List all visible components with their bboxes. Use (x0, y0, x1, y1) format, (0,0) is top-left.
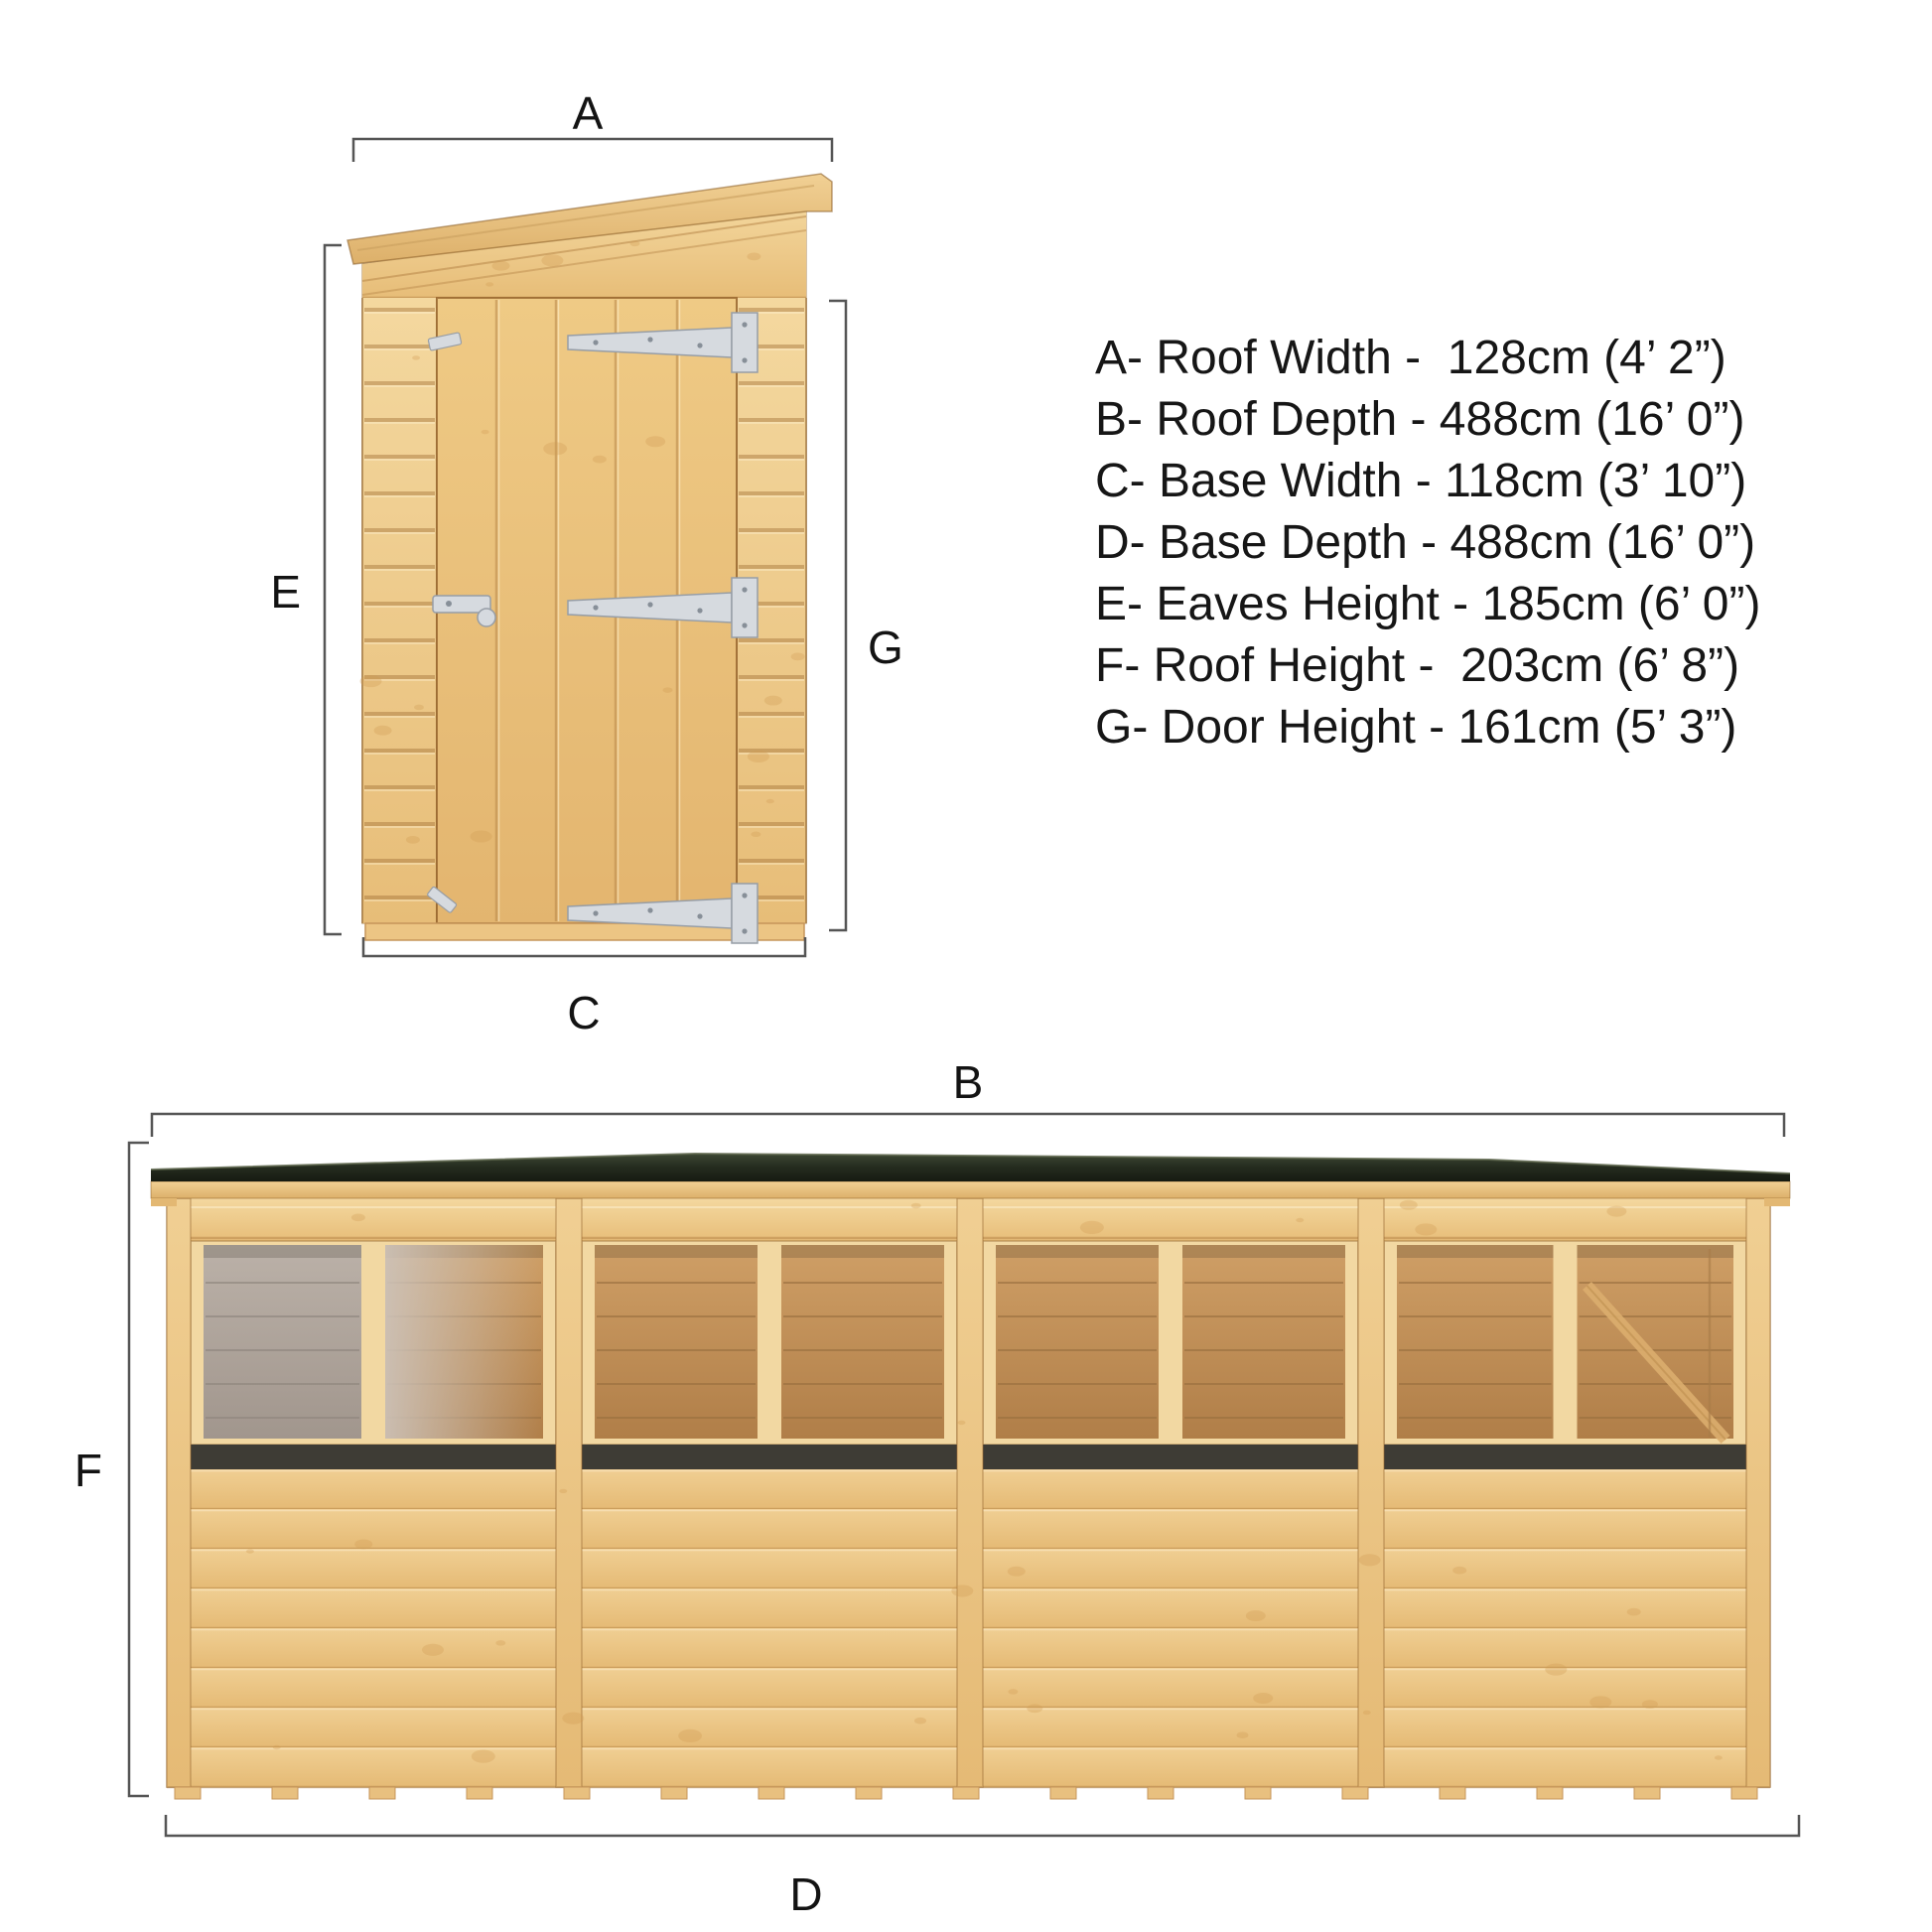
wood-knot (1415, 1223, 1437, 1235)
legend-line: D- Base Depth - 488cm (16’ 0”) (1095, 512, 1760, 574)
dim-label-e: E (270, 566, 301, 618)
roof-overhang-step (151, 1198, 177, 1206)
wood-knot (1237, 1731, 1249, 1738)
window-bay (582, 1241, 957, 1469)
wood-knot (1359, 1554, 1381, 1566)
window-sill-shadow (983, 1445, 1358, 1469)
wood-knot (471, 830, 492, 842)
wood-knot (1606, 1206, 1626, 1217)
wood-knot (630, 241, 640, 247)
foot (1148, 1787, 1173, 1799)
window-pane (204, 1245, 361, 1439)
front-left-wall-strip (360, 298, 438, 923)
wood-knot (678, 1729, 702, 1742)
wood-knot (495, 1640, 505, 1646)
diagram-canvas: A E G C B F D A- Roof Width - 128cm (4’ … (0, 0, 1932, 1932)
roof-felt (151, 1154, 1790, 1181)
foot (661, 1787, 687, 1799)
wood-knot (412, 355, 420, 359)
wood-knot (958, 1421, 966, 1425)
window-pane (385, 1245, 543, 1439)
legend-line: F- Roof Height - 203cm (6’ 8”) (1095, 635, 1760, 697)
wood-knot (1008, 1567, 1026, 1577)
foot (1634, 1787, 1660, 1799)
wood-knot (1627, 1608, 1641, 1616)
legend-line: G- Door Height - 161cm (5’ 3”) (1095, 697, 1760, 759)
dim-line-e-eaves-height (325, 245, 342, 934)
window-bay (983, 1241, 1358, 1469)
wood-knot (747, 253, 760, 261)
wood-knot (273, 1745, 281, 1749)
wood-knot (791, 653, 805, 661)
wood-knot (1080, 1221, 1104, 1234)
dim-line-b-roof-depth (152, 1114, 1784, 1137)
foot (856, 1787, 882, 1799)
window-bay (191, 1241, 556, 1469)
dim-line-d-base-depth (166, 1815, 1799, 1836)
wood-knot (1715, 1755, 1723, 1759)
dim-label-d: D (789, 1868, 822, 1920)
shed-dimensions-diagram: A E G C B F D (0, 0, 1932, 1932)
legend-line: A- Roof Width - 128cm (4’ 2”) (1095, 328, 1760, 389)
wood-knot (406, 836, 420, 844)
wood-knot (485, 282, 493, 286)
foot (272, 1787, 298, 1799)
side-post (556, 1198, 584, 1787)
wood-knot (593, 456, 607, 464)
legend-line: C- Base Width - 118cm (3’ 10”) (1095, 451, 1760, 512)
window-sill-shadow (191, 1445, 556, 1469)
wood-knot (246, 1549, 254, 1553)
foot (467, 1787, 492, 1799)
wood-knot (541, 254, 563, 266)
foot (564, 1787, 590, 1799)
wood-knot (562, 1713, 584, 1725)
window-sill-shadow (1384, 1445, 1746, 1469)
wood-knot (354, 1539, 372, 1549)
wood-knot (748, 751, 769, 762)
dim-label-b: B (953, 1056, 984, 1108)
wood-knot (414, 705, 424, 711)
foot (953, 1787, 979, 1799)
dim-line-g-door-height (829, 301, 846, 930)
foot (175, 1787, 201, 1799)
foot (1537, 1787, 1563, 1799)
wood-knot (1452, 1567, 1466, 1575)
legend-line: B- Roof Depth - 488cm (16’ 0”) (1095, 389, 1760, 451)
dim-label-c: C (567, 987, 600, 1038)
side-view-shed (151, 1154, 1790, 1799)
wood-knot (492, 261, 510, 271)
wood-knot (766, 799, 774, 803)
dim-label-f: F (74, 1445, 102, 1496)
side-roof (151, 1154, 1790, 1206)
side-corner-trim (1746, 1198, 1770, 1787)
dimension-legend: A- Roof Width - 128cm (4’ 2”)B- Roof Dep… (1095, 328, 1760, 759)
window-pane (996, 1245, 1159, 1439)
foot (1440, 1787, 1465, 1799)
front-view-shed (347, 174, 832, 943)
foot (1342, 1787, 1368, 1799)
wood-knot (1545, 1664, 1567, 1676)
dim-line-f-roof-height (129, 1143, 149, 1796)
window-pane (1397, 1245, 1554, 1439)
wood-knot (1008, 1689, 1018, 1695)
wood-knot (1642, 1700, 1658, 1709)
wood-knot (911, 1203, 921, 1209)
dim-label-g: G (868, 621, 903, 673)
wood-knot (360, 675, 382, 687)
window-pane (781, 1245, 944, 1439)
wood-knot (422, 1644, 444, 1656)
window-bay (1384, 1241, 1746, 1469)
wood-knot (663, 687, 673, 693)
wood-knot (1296, 1218, 1304, 1222)
wood-knot (1027, 1704, 1042, 1713)
wood-knot (1363, 1711, 1371, 1715)
wood-knot (645, 436, 665, 447)
wood-knot (1400, 1200, 1418, 1210)
wood-knot (351, 1213, 365, 1221)
wood-knot (1253, 1693, 1273, 1704)
side-corner-trim (167, 1198, 191, 1787)
wood-knot (751, 832, 760, 838)
foot (1731, 1787, 1757, 1799)
foot (1050, 1787, 1076, 1799)
roof-overhang-step (1764, 1198, 1790, 1206)
wood-knot (543, 442, 567, 455)
window-pane (595, 1245, 758, 1439)
wood-knot (482, 430, 489, 434)
wood-knot (374, 726, 392, 736)
window-sill-shadow (582, 1445, 957, 1469)
side-post (1358, 1198, 1384, 1787)
wood-knot (1589, 1696, 1611, 1708)
wood-knot (472, 1750, 495, 1763)
window-pane (1578, 1245, 1734, 1440)
wood-knot (914, 1718, 926, 1725)
wood-knot (951, 1585, 973, 1596)
dim-label-a: A (573, 87, 604, 139)
foot (1245, 1787, 1271, 1799)
foot (759, 1787, 784, 1799)
foot (369, 1787, 395, 1799)
wood-knot (559, 1489, 567, 1493)
floor-bearers (175, 1787, 1757, 1799)
dim-line-a-roof-width (353, 139, 832, 162)
wood-knot (1246, 1610, 1266, 1621)
legend-line: E- Eaves Height - 185cm (6’ 0”) (1095, 574, 1760, 635)
wood-knot (764, 696, 782, 706)
window-pane (1182, 1245, 1345, 1439)
